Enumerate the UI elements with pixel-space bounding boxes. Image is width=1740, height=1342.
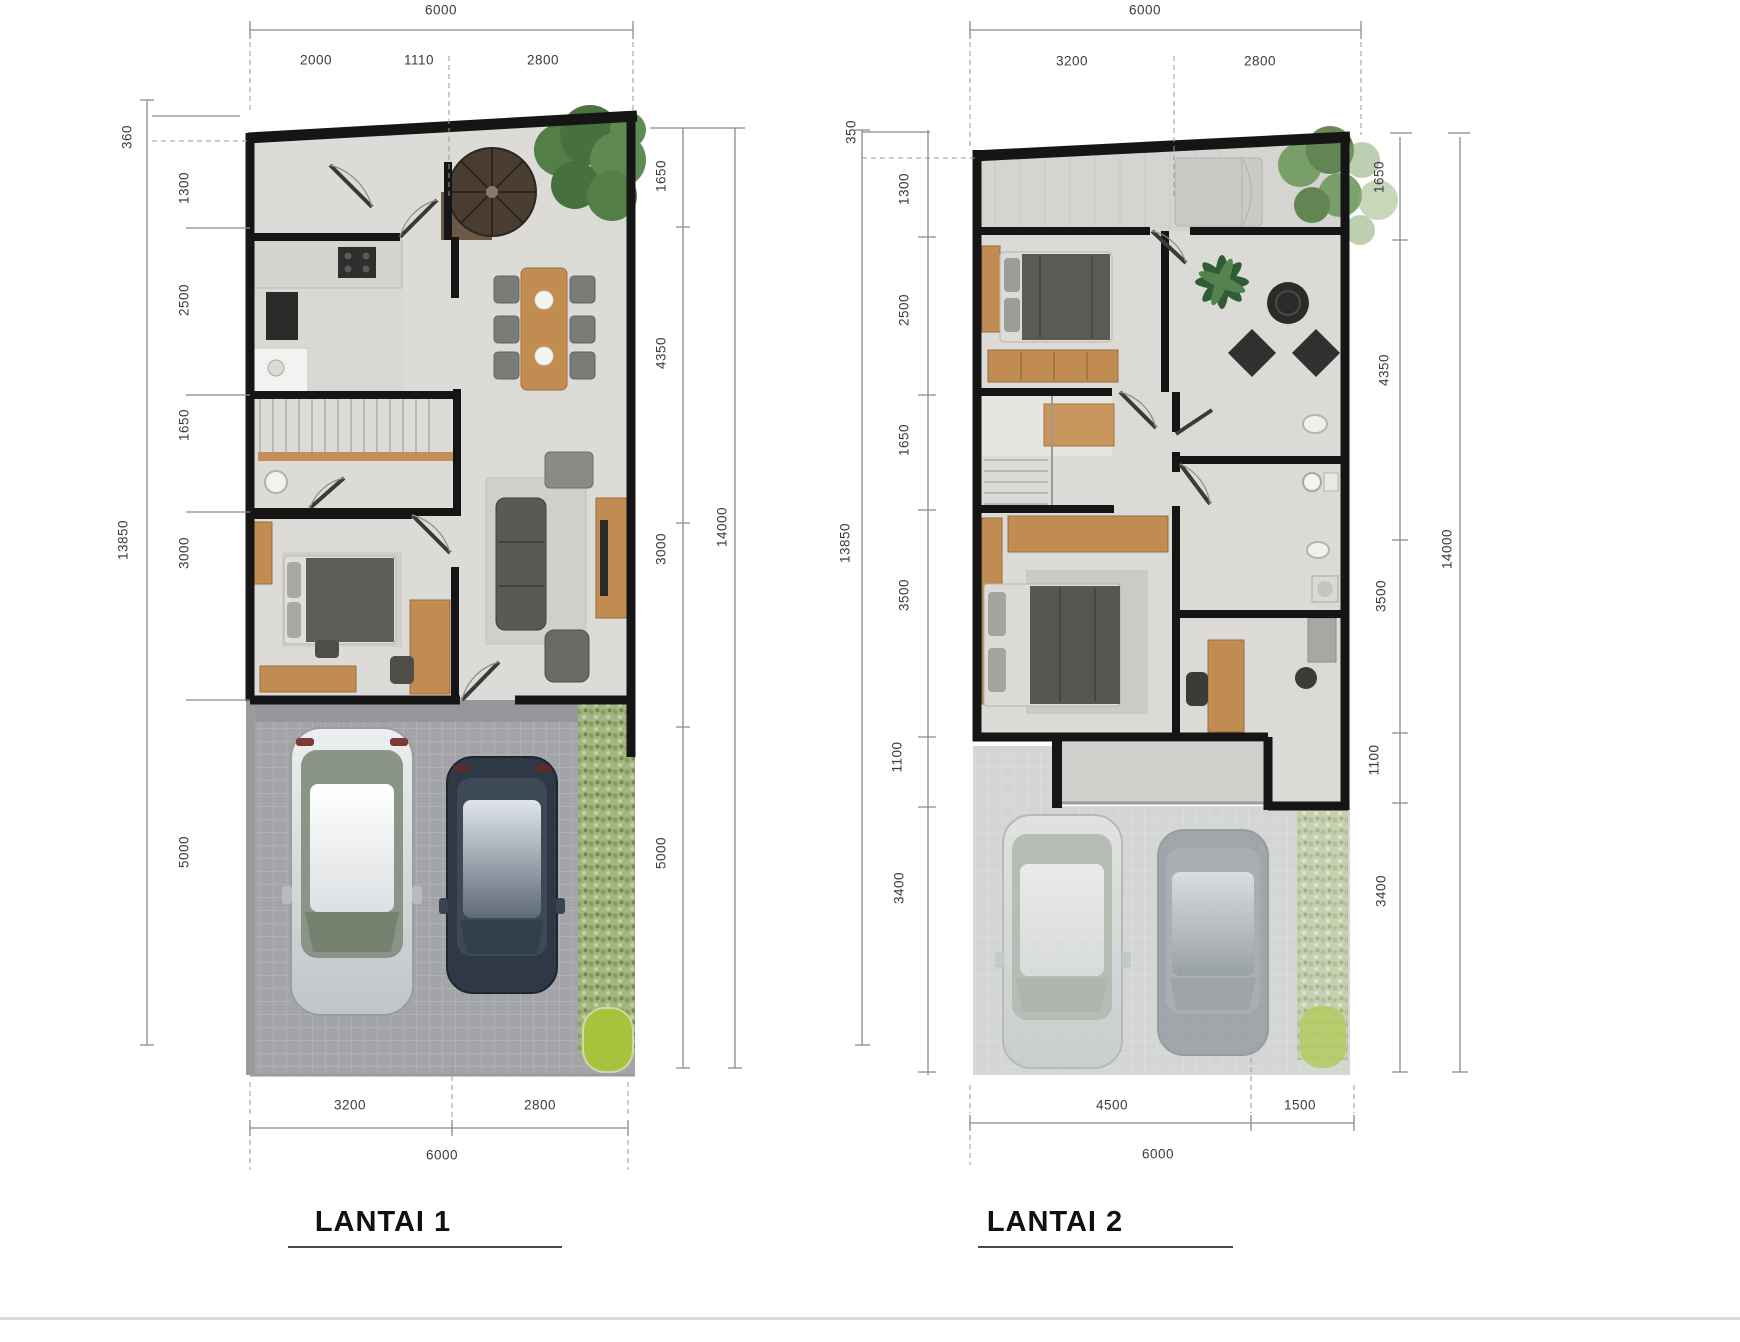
floorplan-sheet: 6000 2000 1110 2800 13850 360 1300 2500 …	[0, 0, 1740, 1342]
bedroom-2	[982, 246, 1118, 382]
dim-label: 1300	[177, 172, 192, 204]
chair	[1295, 667, 1317, 689]
round-table	[1267, 282, 1309, 324]
duvet	[306, 558, 394, 642]
fridge	[266, 292, 298, 340]
plan-lantai-1	[140, 21, 745, 1170]
dim-label: 13850	[838, 523, 853, 563]
dim-label: 6000	[426, 1148, 458, 1163]
dim-label: 3200	[1056, 54, 1088, 69]
car-faded-1	[995, 815, 1131, 1068]
desk-chair	[315, 640, 339, 658]
lime-shrub	[583, 1008, 633, 1072]
dim-label: 2800	[527, 53, 559, 68]
dim-label: 3500	[1374, 580, 1389, 612]
dim-label: 2500	[897, 294, 912, 326]
dim-label: 1500	[1284, 1098, 1316, 1113]
car-dark	[439, 757, 565, 993]
ottoman	[545, 452, 593, 488]
car-silver	[282, 728, 422, 1015]
floorplan-drawing	[0, 0, 1740, 1342]
duvet	[1030, 586, 1120, 704]
dim-label: 3200	[334, 1098, 366, 1113]
kitchen-sink	[268, 360, 284, 376]
dim-label: 4350	[654, 337, 669, 369]
sink	[1303, 415, 1327, 433]
desk	[260, 666, 356, 692]
stair-rail-wood	[1044, 404, 1114, 446]
sink	[265, 471, 287, 493]
dim-label: 3500	[897, 579, 912, 611]
dim-label: 350	[844, 120, 859, 144]
work-desk	[1208, 640, 1244, 732]
dim-label: 2000	[300, 53, 332, 68]
dim-label: 4350	[1377, 354, 1392, 386]
car-faded-2	[1158, 830, 1268, 1055]
armchair	[545, 630, 589, 682]
dim-label: 1100	[1367, 744, 1382, 775]
dim-label: 1650	[177, 409, 192, 441]
dim-label: 3000	[177, 537, 192, 569]
work-chair	[1186, 672, 1208, 706]
dim-label: 1650	[654, 160, 669, 192]
dim-label: 1650	[897, 424, 912, 456]
dim-label: 5000	[654, 837, 669, 869]
palm-plant	[1195, 255, 1249, 309]
wardrobe	[988, 350, 1118, 382]
dim-label: 5000	[177, 836, 192, 868]
tv	[600, 520, 608, 596]
title-underline	[978, 1246, 1233, 1248]
stair-base-wood	[258, 452, 454, 461]
dim-label: 3000	[654, 533, 669, 565]
sofa	[496, 498, 546, 630]
wardrobe	[254, 522, 272, 584]
toilet	[1303, 473, 1321, 491]
dim-label: 13850	[116, 520, 131, 560]
dim-label: 360	[120, 125, 135, 149]
duvet	[1022, 254, 1110, 340]
dim-label: 3400	[892, 872, 907, 904]
dim-label: 1110	[404, 53, 434, 68]
dim-label: 1650	[1372, 161, 1387, 193]
plan-title-lantai-1: LANTAI 1	[315, 1206, 451, 1239]
dim-label: 2500	[177, 284, 192, 316]
dim-label: 2800	[1244, 54, 1276, 69]
dim-label: 1100	[890, 741, 905, 772]
dim-label: 6000	[1142, 1147, 1174, 1162]
title-underline	[288, 1246, 562, 1248]
dim-label: 3400	[1374, 875, 1389, 907]
dim-label: 4500	[1096, 1098, 1128, 1113]
dining-set	[494, 268, 595, 390]
hedge	[578, 702, 635, 1054]
side-desk	[410, 600, 450, 694]
lime-shrub-faded	[1300, 1006, 1346, 1068]
page-bottom-rule	[0, 1317, 1740, 1320]
dim-label: 1300	[897, 173, 912, 205]
dim-label: 6000	[425, 3, 457, 18]
dim-label: 14000	[1440, 529, 1455, 569]
side-chair	[390, 656, 414, 684]
dim-label: 14000	[715, 507, 730, 547]
dining-table	[521, 268, 567, 390]
stove	[338, 247, 376, 278]
side-fence	[246, 700, 255, 1075]
dim-label: 6000	[1129, 3, 1161, 18]
headboard-shelf	[1008, 516, 1168, 552]
balcony-floor	[1062, 742, 1268, 804]
plan-title-lantai-2: LANTAI 2	[987, 1206, 1123, 1239]
side-table	[1308, 618, 1336, 662]
sink	[1307, 542, 1329, 558]
dim-label: 2800	[524, 1098, 556, 1113]
master-bedroom	[982, 516, 1168, 714]
